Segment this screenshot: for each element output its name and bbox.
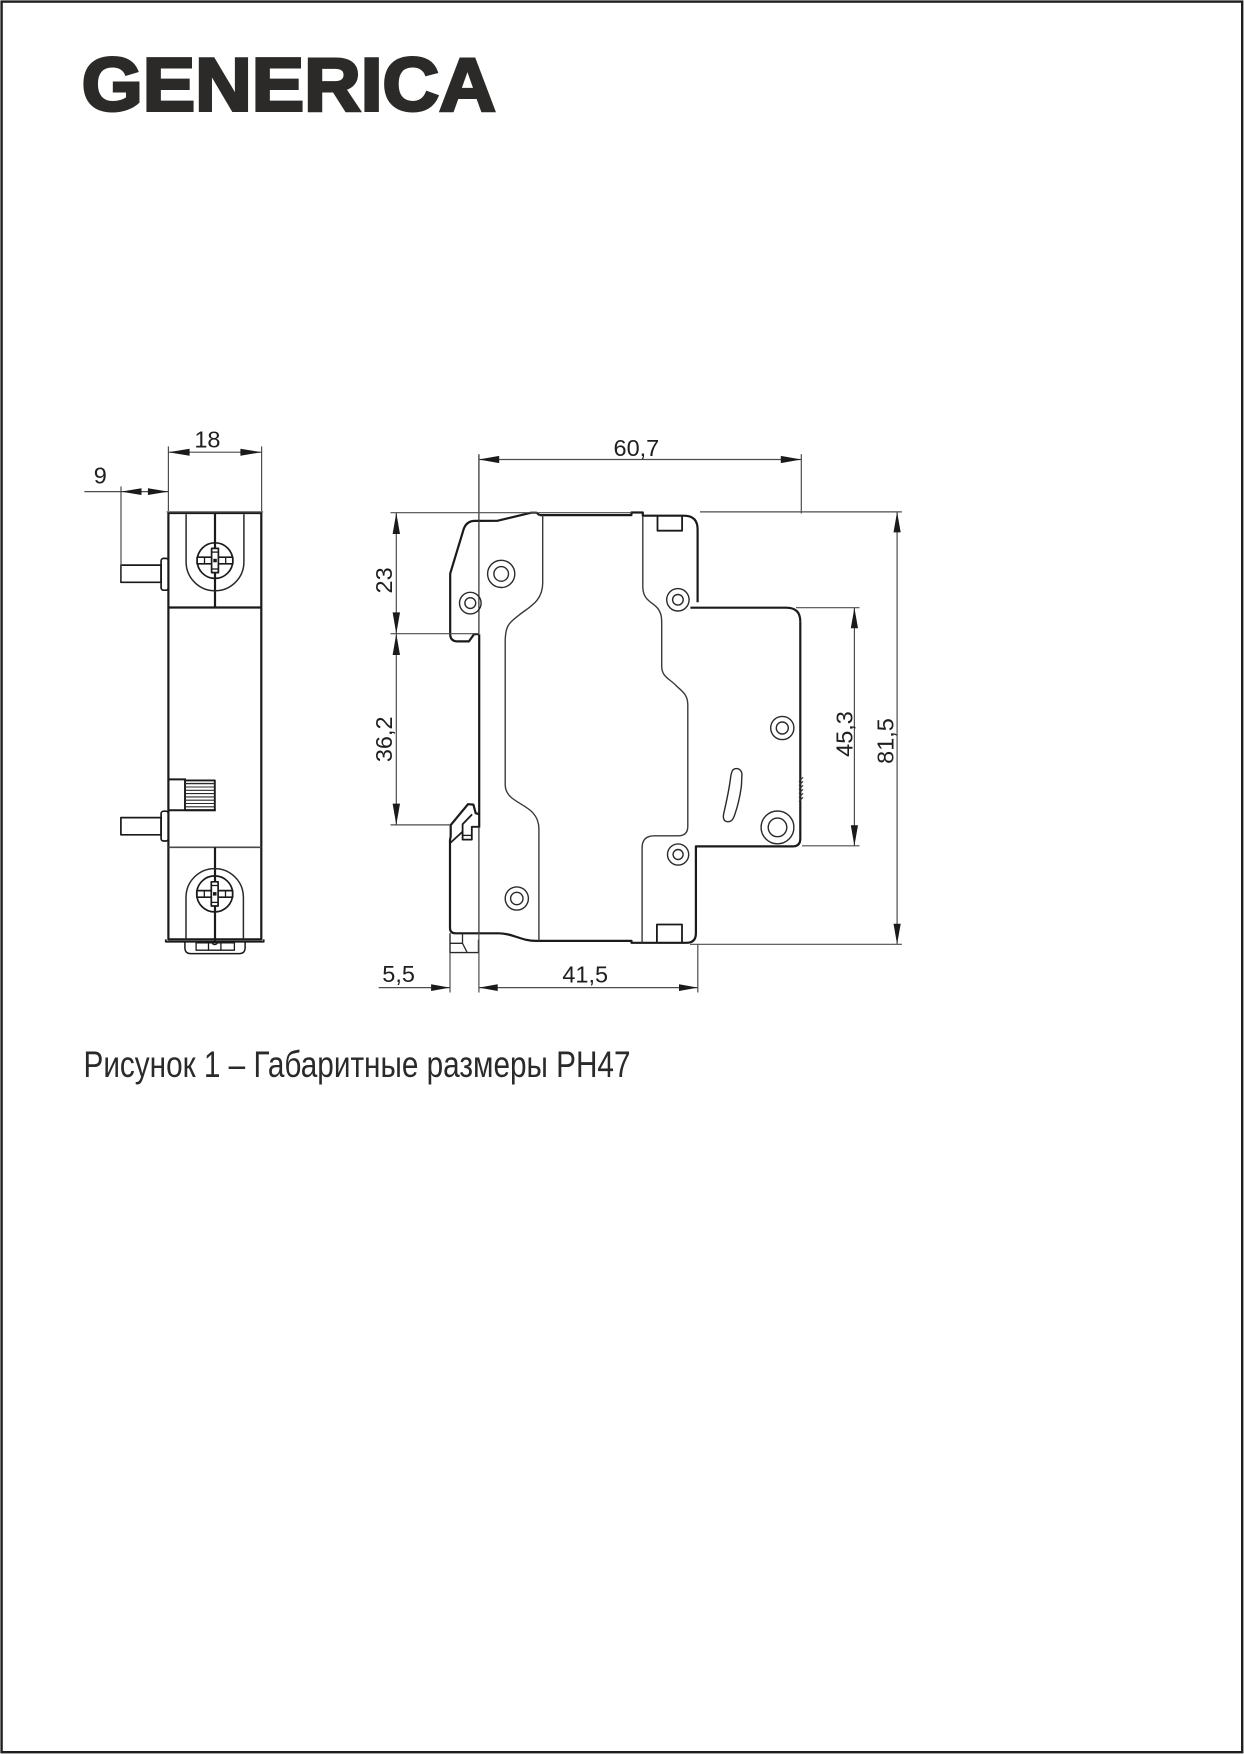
svg-text:60,7: 60,7 <box>614 435 660 461</box>
svg-text:Рисунок 1 – Габаритные размеры: Рисунок 1 – Габаритные размеры РН47 <box>84 1044 631 1085</box>
svg-text:GENERICA: GENERICA <box>82 43 496 127</box>
svg-text:18: 18 <box>194 427 220 453</box>
svg-text:5,5: 5,5 <box>382 961 415 987</box>
svg-text:23: 23 <box>371 567 397 593</box>
svg-text:36,2: 36,2 <box>371 716 397 762</box>
svg-text:41,5: 41,5 <box>562 962 608 988</box>
svg-text:45,3: 45,3 <box>832 711 858 757</box>
svg-text:81,5: 81,5 <box>873 718 899 764</box>
svg-text:9: 9 <box>94 463 107 489</box>
